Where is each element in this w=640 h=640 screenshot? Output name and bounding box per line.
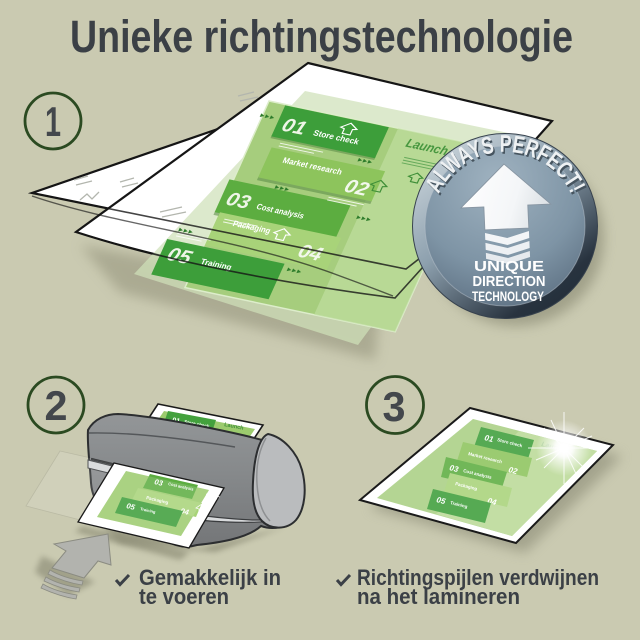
svg-text:1: 1 xyxy=(45,98,61,145)
svg-text:na het lamineren: na het lamineren xyxy=(357,584,520,609)
svg-text:te voeren: te voeren xyxy=(139,584,229,609)
svg-text:3: 3 xyxy=(383,383,406,430)
svg-text:2: 2 xyxy=(45,382,68,429)
svg-text:UNIQUE: UNIQUE xyxy=(474,259,544,275)
svg-text:Unieke richtingstechnologie: Unieke richtingstechnologie xyxy=(70,11,573,62)
svg-text:DIRECTION: DIRECTION xyxy=(473,274,546,290)
svg-text:TECHNOLOGY: TECHNOLOGY xyxy=(472,289,544,304)
